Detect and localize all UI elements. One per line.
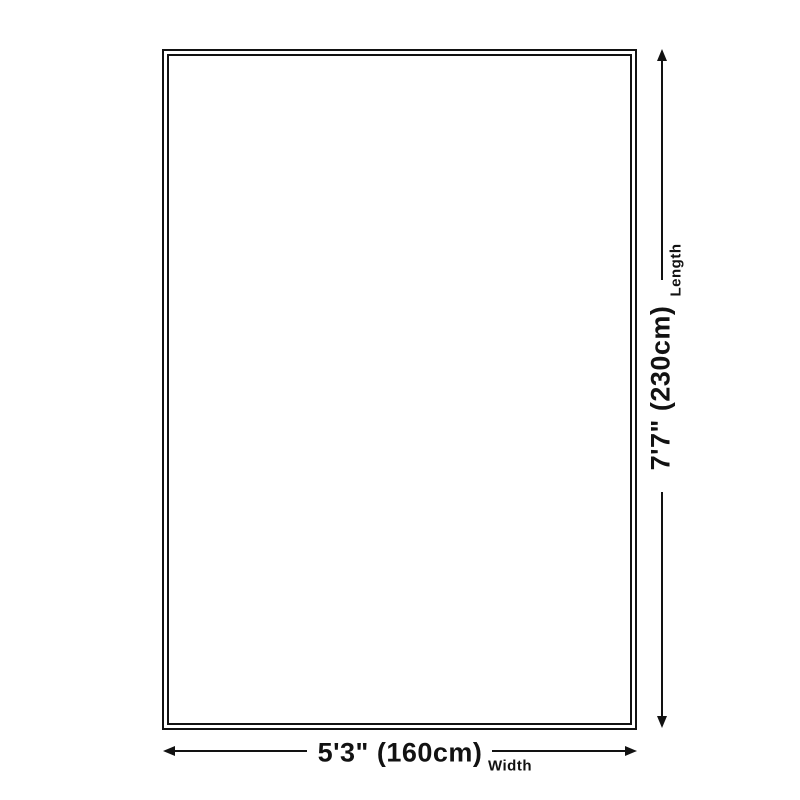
width-line-right-segment	[492, 750, 626, 752]
length-line-bottom-segment	[661, 492, 663, 718]
width-axis-label: Width	[488, 759, 532, 774]
width-value: 5'3" (160cm)	[318, 740, 483, 767]
arrow-down-icon	[657, 716, 667, 728]
rug-inner-border	[167, 54, 632, 725]
rug-outer-border	[162, 49, 637, 730]
arrow-right-icon	[625, 746, 637, 756]
length-axis-label: Length	[669, 244, 684, 297]
rug-dimension-diagram: Length 7'7" (230cm) 5'3" (160cm) Width	[0, 0, 800, 800]
length-line-top-segment	[661, 59, 663, 280]
width-line-left-segment	[174, 750, 307, 752]
length-value: 7'7" (230cm)	[648, 306, 675, 471]
